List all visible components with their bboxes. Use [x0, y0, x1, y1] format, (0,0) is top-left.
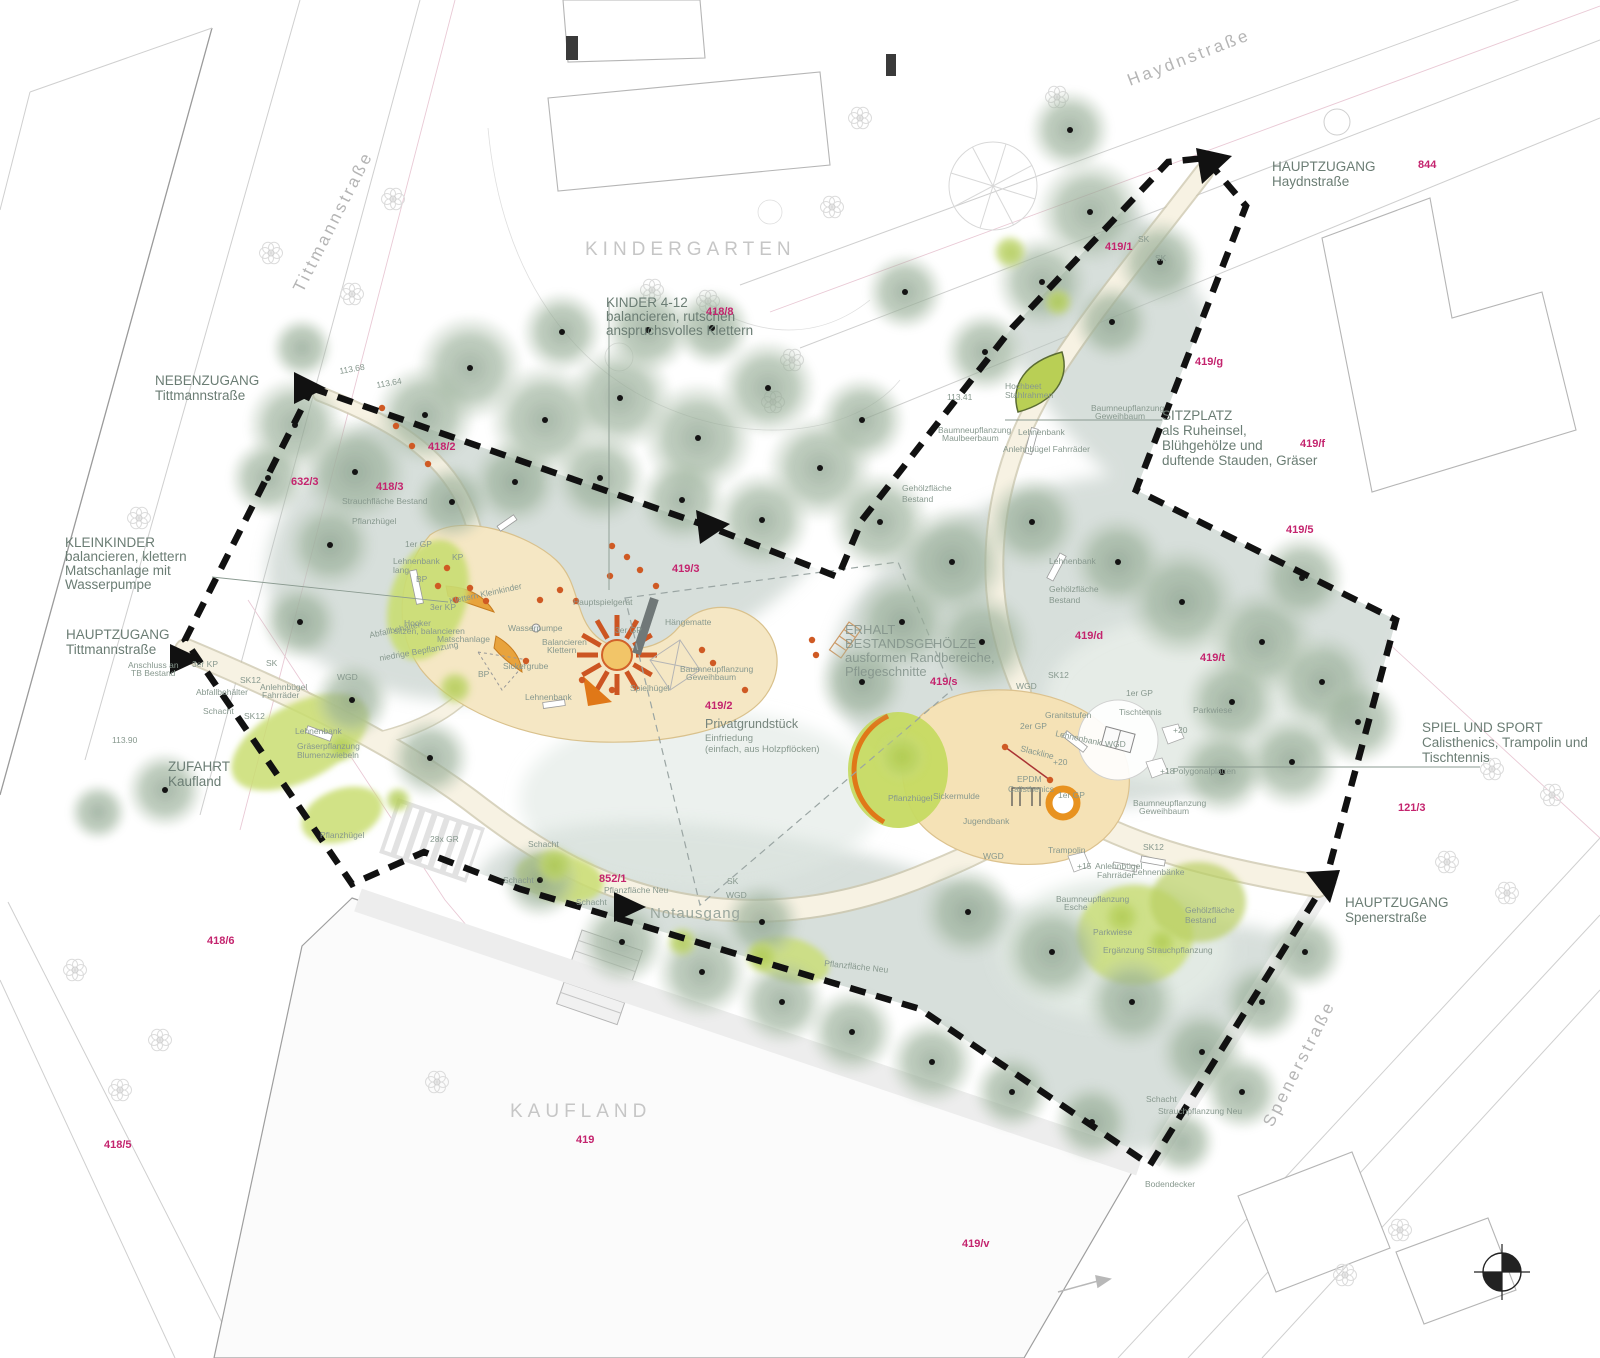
tree-canopy: [384, 786, 412, 814]
tree-trunk-dot: [542, 417, 548, 423]
tree-trunk-dot: [327, 542, 333, 548]
plan-label: Stahlrahmen: [1005, 390, 1053, 400]
district-kaufland: KAUFLAND: [510, 1101, 651, 1122]
parcel-number: 419/g: [1195, 356, 1223, 368]
callout-spielsport-l3: Tischtennis: [1422, 750, 1490, 765]
plan-label: Geweihbaum: [1095, 411, 1145, 421]
street-name-haydn: Haydnstraße: [1125, 25, 1253, 89]
plan-label: KP: [452, 552, 464, 562]
street-name-tittmann: Tittmannstraße: [289, 148, 377, 295]
site-plan-page: Haydnstraße Tittmannstraße Spenerstraße …: [0, 0, 1600, 1358]
plan-label: +15: [1077, 861, 1092, 871]
street-tree-flower-icon: [1496, 882, 1519, 903]
tree-trunk-dot: [899, 619, 905, 625]
plan-label: Lehnenbänke: [1133, 867, 1185, 877]
pergola-fan-structure: [949, 142, 1037, 230]
tree-trunk-dot: [1289, 759, 1295, 765]
tree-trunk-dot: [1259, 999, 1265, 1005]
play-post-dot: [557, 587, 563, 593]
tree-trunk-dot: [1009, 1089, 1015, 1095]
plan-label: Esche: [1064, 902, 1088, 912]
site-plan-drawing: Haydnstraße Tittmannstraße Spenerstraße …: [0, 0, 1600, 1358]
tree-trunk-dot: [759, 517, 765, 523]
tree-trunk-dot: [512, 479, 518, 485]
plan-label: Trampolin: [1048, 845, 1086, 855]
tree-canopy: [437, 670, 473, 706]
plan-label: SK: [727, 876, 739, 886]
plan-label: Jugendbank: [963, 816, 1010, 826]
tree-trunk-dot: [1179, 599, 1185, 605]
plan-label: 28x GR: [430, 834, 459, 844]
plan-label: WGD: [726, 890, 747, 900]
plan-label: Maulbeerbaum: [942, 433, 999, 443]
callout-kleinkinder-l2: balancieren, klettern: [65, 549, 187, 564]
plan-label: SK: [266, 658, 278, 668]
entrance-label-spener-street: Spenerstraße: [1345, 910, 1427, 925]
plan-label: SK: [1155, 253, 1167, 263]
tree-canopy: [876, 731, 928, 783]
plan-label: 113.68: [339, 362, 366, 376]
plan-label: Abfallbehälter: [196, 687, 248, 697]
play-post-dot: [1047, 777, 1053, 783]
plan-label: Fahrräder: [1097, 870, 1134, 880]
tree-trunk-dot: [902, 289, 908, 295]
plan-label: Bestand: [1049, 595, 1080, 605]
entrance-label-haydn-street: Haydnstraße: [1272, 174, 1349, 189]
tree-trunk-dot: [859, 679, 865, 685]
parcel-number: 418/3: [376, 481, 404, 493]
street-tree-flower-icon: [64, 959, 87, 980]
plan-label: Fahrräder: [262, 690, 299, 700]
tree-trunk-dot: [679, 497, 685, 503]
parcel-number: 419/f: [1300, 438, 1325, 450]
callout-kleinkinder-l4: Wasserpumpe: [65, 577, 152, 592]
callout-kleinkinder: KLEINKINDER: [65, 535, 155, 550]
entrance-label-tittmann-street: Tittmannstraße: [66, 642, 156, 657]
callout-kinder: KINDER 4-12: [606, 295, 688, 310]
tree-trunk-dot: [349, 697, 355, 703]
tree-trunk-dot: [352, 469, 358, 475]
tree-trunk-dot: [597, 475, 603, 481]
play-post-dot: [393, 423, 399, 429]
tree-trunk-dot: [779, 999, 785, 1005]
entrance-label-spener: HAUPTZUGANG: [1345, 895, 1449, 910]
tree-trunk-dot: [1039, 279, 1045, 285]
plan-label: Parkwiese: [1193, 705, 1232, 715]
plan-label: 2er GP: [1020, 721, 1047, 731]
plan-label: SK12: [1143, 842, 1164, 852]
play-post-dot: [1002, 744, 1008, 750]
callout-privat-l2: Einfriedung: [705, 733, 753, 744]
plan-label: Bestand: [902, 494, 933, 504]
tree-trunk-dot: [1239, 1089, 1245, 1095]
callout-erhalt-l4: Pflegeschnitte: [845, 664, 927, 679]
callout-sitzplatz-l4: duftende Stauden, Gräser: [1162, 453, 1318, 468]
entrance-label-zufahrt-target: Kaufland: [168, 774, 221, 789]
tree-trunk-dot: [982, 349, 988, 355]
plan-label: Bodendecker: [1145, 1179, 1195, 1189]
plan-label: Ergänzung Strauchpflanzung: [1103, 945, 1213, 955]
plan-label: +20: [1053, 757, 1068, 767]
tree-trunk-dot: [949, 559, 955, 565]
plan-label: 1er GP: [1126, 688, 1153, 698]
play-post-dot: [609, 543, 615, 549]
tree-canopy: [1043, 287, 1073, 317]
callout-kleinkinder-l3: Matschanlage mit: [65, 563, 171, 578]
plan-label: SK12: [1048, 670, 1069, 680]
plan-label: 1er GP: [1058, 790, 1085, 800]
tree-trunk-dot: [427, 755, 433, 761]
plan-label: 3er KP: [192, 659, 218, 669]
tree-trunk-dot: [817, 465, 823, 471]
street-tree-flower-icon: [821, 196, 844, 217]
plan-label: EPDM: [1017, 774, 1042, 784]
street-tree-flower-icon: [149, 1029, 172, 1050]
tree-canopy: [68, 782, 128, 842]
street-tree-flower-icon: [109, 1079, 132, 1100]
plan-label: Sickergrube: [503, 661, 549, 671]
parcel-number: 419/3: [672, 563, 700, 575]
plan-label: WGD: [983, 851, 1004, 861]
plan-label: Sickermulde: [933, 791, 980, 801]
tree-trunk-dot: [1129, 999, 1135, 1005]
plan-label: Anlehnbügel Fahrräder: [1003, 444, 1090, 454]
play-post-dot: [809, 637, 815, 643]
plan-label: SK12: [240, 675, 261, 685]
callout-privat: Privatgrundstück: [705, 717, 799, 731]
plan-label: Geweihbaum: [1139, 806, 1189, 816]
plan-label: Strauchfläche Bestand: [342, 496, 428, 506]
callout-sitzplatz-l3: Blühgehölze und: [1162, 438, 1263, 453]
tree-trunk-dot: [617, 395, 623, 401]
plan-label: WGD: [1016, 681, 1037, 691]
plan-label: Lehnenbank: [295, 726, 343, 736]
parcel-number: 844: [1418, 159, 1437, 171]
plan-label: Parkwiese: [1093, 927, 1132, 937]
callout-kinder-l3: anspruchsvolles Klettern: [606, 323, 753, 338]
tree-trunk-dot: [979, 639, 985, 645]
street-tree-flower-icon: [849, 107, 872, 128]
tree-trunk-dot: [1029, 519, 1035, 525]
tree-trunk-dot: [297, 619, 303, 625]
plan-label: Pflanzhügel: [352, 516, 397, 526]
callout-spielsport-l2: Calisthenics, Trampolin und: [1422, 735, 1588, 750]
callout-sitzplatz: SITZPLATZ: [1162, 408, 1232, 423]
play-post-dot: [637, 567, 643, 573]
tree-trunk-dot: [1319, 679, 1325, 685]
tree-trunk-dot: [422, 412, 428, 418]
callout-erhalt-l3: ausformen Randbereiche,: [845, 650, 995, 665]
plan-label: Pflanzhügel: [888, 793, 933, 803]
parcel-number: 419: [576, 1134, 594, 1146]
play-post-dot: [444, 565, 450, 571]
shaft-structure: [886, 54, 896, 76]
plan-label: Lehnenbank: [1018, 427, 1066, 437]
tree-trunk-dot: [859, 417, 865, 423]
tree-canopy: [666, 926, 698, 958]
plan-label: TB Bestand: [131, 668, 176, 678]
entrance-label-zufahrt: ZUFAHRT: [168, 759, 230, 774]
play-post-dot: [537, 597, 543, 603]
parcel-number: 419/5: [1286, 524, 1314, 536]
tree-trunk-dot: [877, 519, 883, 525]
plan-label: Gehölzfläche: [1049, 584, 1099, 594]
callout-erhalt: ERHALT: [845, 622, 895, 637]
parcel-number: 418/8: [706, 306, 734, 318]
play-post-dot: [425, 461, 431, 467]
entrance-label-neben-street: Tittmannstraße: [155, 388, 245, 403]
tree-trunk-dot: [699, 969, 705, 975]
play-post-dot: [607, 573, 613, 579]
plan-label: Pflanzhügel: [320, 830, 365, 840]
plan-label: Klettern: [547, 645, 577, 655]
tree-trunk-dot: [929, 1059, 935, 1065]
plan-label: Strauchpflanzung Neu: [1158, 1106, 1242, 1116]
tree-trunk-dot: [1087, 209, 1093, 215]
entrance-label-tittmann: HAUPTZUGANG: [66, 627, 170, 642]
parcel-number: 419/1: [1105, 241, 1133, 253]
plan-label: Bestand: [1185, 915, 1216, 925]
plan-label: Pflanzfläche Neu: [604, 885, 669, 895]
plan-label: Geweihbaum: [686, 672, 736, 682]
street-tree-flower-icon: [1389, 1219, 1412, 1240]
plan-label: Blumenzwiebeln: [297, 750, 359, 760]
plan-label: Hauptspielgerät: [573, 597, 633, 607]
tree-trunk-dot: [965, 909, 971, 915]
play-post-dot: [579, 677, 585, 683]
plan-label: 3er GP: [615, 625, 642, 635]
plan-label: +18: [1160, 766, 1175, 776]
play-post-dot: [379, 405, 385, 411]
parcel-number: 418/5: [104, 1139, 132, 1151]
tree-trunk-dot: [1067, 127, 1073, 133]
play-post-dot: [653, 583, 659, 589]
parcel-number: 632/3: [291, 476, 319, 488]
plan-label: BP: [416, 574, 428, 584]
plan-label: Schacht: [576, 897, 607, 907]
tree-canopy: [270, 316, 334, 380]
plan-label: BP: [478, 669, 490, 679]
tree-trunk-dot: [1302, 949, 1308, 955]
plan-label: Lehnenbank: [525, 692, 573, 702]
plan-label: Gehölzfläche: [902, 483, 952, 493]
plan-label: Schacht: [503, 875, 534, 885]
plan-label: Calisthenics: [1008, 784, 1054, 794]
tree-trunk-dot: [759, 919, 765, 925]
plan-label: Schacht: [528, 839, 559, 849]
plan-label: Gehölzfläche: [1185, 905, 1235, 915]
street-tree-flower-icon: [1541, 784, 1564, 805]
play-post-dot: [609, 687, 615, 693]
parcel-number: 418/2: [428, 441, 456, 453]
parcel-number: 419/v: [962, 1238, 990, 1250]
plan-label: 1er GP: [405, 539, 432, 549]
plan-label: Lehnenbank: [1049, 556, 1097, 566]
parcel-number: 852/1: [599, 873, 627, 885]
plan-label: Granitstufen: [1045, 710, 1092, 720]
tree-trunk-dot: [1259, 639, 1265, 645]
tree-trunk-dot: [467, 365, 473, 371]
street-tree-flower-icon: [341, 283, 364, 304]
callout-sitzplatz-l2: als Ruheinsel,: [1162, 423, 1247, 438]
plan-label: SK12: [244, 711, 265, 721]
parcel-number: 419/2: [705, 700, 733, 712]
street-tree-flower-icon: [128, 507, 151, 528]
plan-label: +20: [1173, 725, 1188, 735]
tree-trunk-dot: [765, 385, 771, 391]
play-post-dot: [742, 687, 748, 693]
callout-spielsport: SPIEL UND SPORT: [1422, 720, 1543, 735]
plan-label: Polygonalplatten: [1173, 766, 1236, 776]
tree-trunk-dot: [695, 435, 701, 441]
tree-trunk-dot: [1199, 1049, 1205, 1055]
tree-trunk-dot: [559, 329, 565, 335]
plan-label: Wasserpumpe: [508, 623, 563, 633]
plan-label: Tischtennis: [1119, 707, 1162, 717]
plan-label: Hängematte: [665, 617, 712, 627]
plan-label: lang: [393, 565, 409, 575]
plan-label: Schacht: [1146, 1094, 1177, 1104]
parcel-number: 419/d: [1075, 630, 1103, 642]
tree-trunk-dot: [619, 939, 625, 945]
tree-trunk-dot: [265, 475, 271, 481]
exit-label-notausgang: Notausgang: [650, 905, 741, 922]
play-post-dot: [624, 554, 630, 560]
play-post-dot: [813, 652, 819, 658]
district-kindergarten: KINDERGARTEN: [585, 239, 796, 260]
tree-trunk-dot: [1109, 319, 1115, 325]
tree-canopy: [535, 845, 575, 885]
play-post-dot: [435, 583, 441, 589]
tree-trunk-dot: [1355, 719, 1361, 725]
plan-label: WGD: [337, 672, 358, 682]
parcel-number: 121/3: [1398, 802, 1426, 814]
parcel-number: 418/6: [207, 935, 235, 947]
plan-label: Schacht: [203, 706, 234, 716]
plan-label: 113.90: [112, 735, 138, 745]
tree-trunk-dot: [1049, 949, 1055, 955]
parcel-number: 419/t: [1200, 652, 1225, 664]
parcel-number: 419/s: [930, 676, 958, 688]
street-tree-flower-icon: [1436, 851, 1459, 872]
street-tree-flower-icon: [382, 188, 405, 209]
street-tree-flower-icon: [260, 242, 283, 263]
tree-trunk-dot: [1115, 559, 1121, 565]
callout-erhalt-l2: BESTANDSGEHÖLZE: [845, 636, 977, 651]
plan-label: Spielhügel: [630, 683, 670, 693]
play-post-dot: [699, 647, 705, 653]
entrance-label-neben: NEBENZUGANG: [155, 373, 259, 388]
entrance-arrow-haydn: [1196, 148, 1232, 184]
tree-canopy: [992, 234, 1028, 270]
plan-label: WGD: [1105, 739, 1126, 749]
callout-privat-l3: (einfach, aus Holzpflöcken): [705, 744, 820, 755]
plan-label: SK: [1138, 234, 1150, 244]
plan-label: 113.41: [947, 392, 973, 402]
shaft-structure: [566, 36, 578, 60]
play-post-dot: [409, 443, 415, 449]
tree-trunk-dot: [449, 499, 455, 505]
tree-trunk-dot: [849, 1029, 855, 1035]
entrance-label-haydn: HAUPTZUGANG: [1272, 159, 1376, 174]
